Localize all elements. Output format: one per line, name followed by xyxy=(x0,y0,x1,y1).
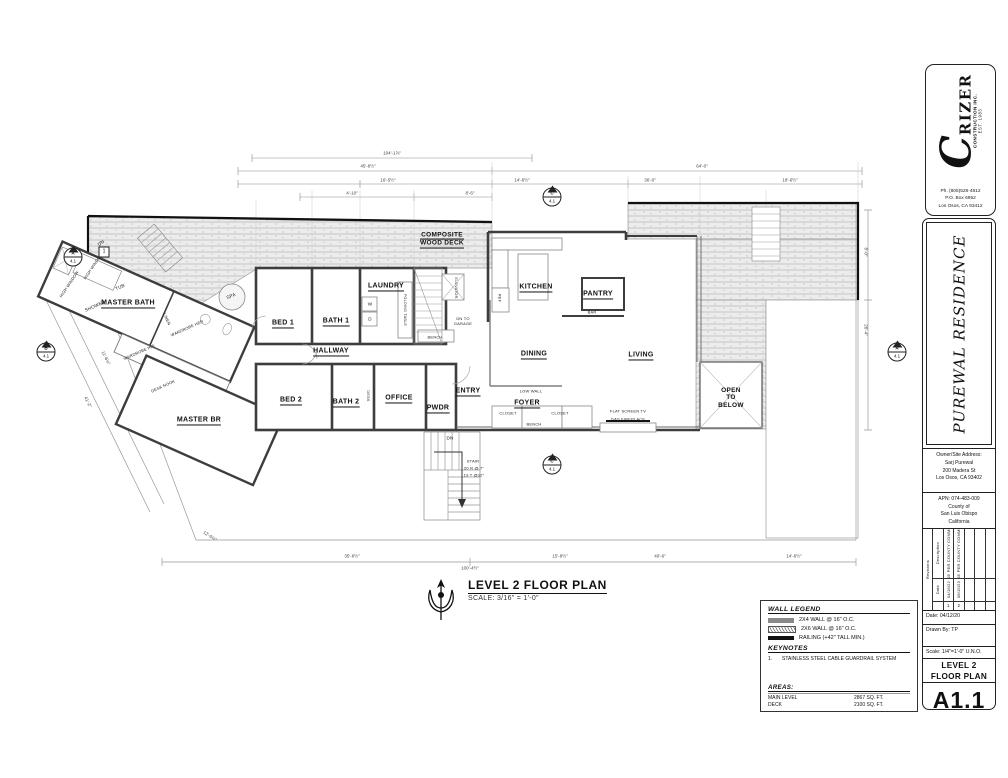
dimension-label: 45'-6½" xyxy=(360,164,375,169)
room-label: ENTRY xyxy=(456,387,481,396)
company-logo-box: CRIZER CONSTRUCTION INC. EST. 1983 Ph. (… xyxy=(925,64,996,216)
revisions-table: Revisions Description Date REVISE PER CO… xyxy=(923,529,995,611)
keynotes-title: KEYNOTES xyxy=(768,645,910,653)
sheet-title: LEVEL 2 FLOOR PLAN xyxy=(923,659,995,683)
room-label: HALLWAY xyxy=(313,347,349,356)
plan-annotation: GAS FIREPLACE xyxy=(611,417,645,422)
deck-stair-right xyxy=(752,207,780,261)
dimension-label: 8'-6" xyxy=(466,191,475,196)
dimension-label: 64'-0" xyxy=(696,164,707,169)
plan-annotation: BAR xyxy=(588,310,597,315)
plan-annotation: DN xyxy=(446,436,453,441)
plan-annotation: DN TO GARAGE xyxy=(449,317,477,327)
plan-annotation: STAIR xyxy=(467,459,479,464)
plan-title-block: LEVEL 2 FLOOR PLAN SCALE: 3/16" = 1'-0" xyxy=(424,578,607,622)
legend-item: RAILING (+42" TALL MIN.) xyxy=(768,635,910,641)
plan-title: LEVEL 2 FLOOR PLAN xyxy=(468,578,607,594)
keynote-item: 1. STAINLESS STEEL CABLE GUARDRAIL SYSTE… xyxy=(768,656,910,662)
date-field: Date: 04/12/20 xyxy=(923,611,995,625)
room-label: BATH 2 xyxy=(333,398,360,407)
room-label: LAUNDRY xyxy=(368,282,404,291)
company-contact: Ph. (805)528-4812 P.O. Box 6952 Los Osos… xyxy=(926,188,995,210)
dimension-label: 18'-6½" xyxy=(782,178,797,183)
dimension-label: 14'-6½" xyxy=(786,554,801,559)
room-label: OFFICE xyxy=(385,394,412,403)
plan-annotation: REF xyxy=(498,294,503,303)
plan-annotation: LOW WALL xyxy=(520,389,543,394)
dimension-label: 14'-6½" xyxy=(514,178,529,183)
dimension-label: 35'-6½" xyxy=(344,554,359,559)
room-label: MASTER BATH xyxy=(101,299,155,308)
owner-address-box: Owner/Site Address: Sarj Purewal 200 Mad… xyxy=(923,449,995,493)
plan-annotation: BENCH xyxy=(526,422,541,427)
dimension-label: 104'-1⅞" xyxy=(383,151,401,156)
plan-annotation: 19 T @12" xyxy=(464,473,485,478)
dimension-label: 100'-4½" xyxy=(461,566,479,571)
dimension-label: 15'-8½" xyxy=(552,554,567,559)
section-marker: A4.1 xyxy=(64,248,83,267)
room-label: PANTRY xyxy=(583,290,613,299)
plan-annotation: DESK xyxy=(366,390,370,401)
section-marker: B4.1 xyxy=(37,343,56,362)
plan-annotation: D xyxy=(368,317,372,322)
wall-swatch-gray xyxy=(768,618,794,623)
deck-label: COMPOSITE WOOD DECK xyxy=(420,232,464,249)
revision-entry: REVISE PER COUNTY COMMENTS 09/15/23 2 xyxy=(954,529,965,610)
room-label: BED 1 xyxy=(272,319,294,328)
revisions-header-col: Description Date xyxy=(933,529,944,610)
room-label: BED 2 xyxy=(280,396,302,405)
legend-item: 2X6 WALL @ 16" O.C. xyxy=(768,626,910,633)
room-label: DINING xyxy=(521,350,547,359)
wall-swatch-hatch xyxy=(768,626,796,633)
room-label: KITCHEN xyxy=(519,283,552,292)
title-block: PUREWAL RESIDENCE Owner/Site Address: Sa… xyxy=(922,218,996,710)
plan-annotation: ELEVATOR xyxy=(454,277,458,298)
room-label: PWDR xyxy=(427,404,450,413)
plan-annotation: BENCH xyxy=(427,335,442,340)
plan-annotation: 20 R @ 7" xyxy=(464,466,484,471)
dimension-label: 4'-10" xyxy=(346,191,357,196)
plan-annotation: W xyxy=(368,302,373,307)
area-row: MAIN LEVEL2867 SQ. FT. xyxy=(768,693,910,701)
plan-annotation: CLOSET xyxy=(499,411,516,416)
dimension-label: 26'-4" xyxy=(864,324,869,335)
section-marker: A4.1 xyxy=(888,343,907,362)
room-label: FOYER xyxy=(514,399,540,408)
plan-annotation: FLAT SCREEN TV xyxy=(610,409,646,414)
apn-box: APN: 074-483-009 County of San Luis Obis… xyxy=(923,493,995,529)
area-row: DECK2100 SQ. FT. xyxy=(768,701,910,708)
legend-box: WALL LEGEND 2X4 WALL @ 16" O.C. 2X6 WALL… xyxy=(760,600,918,712)
section-marker: C4.1 xyxy=(543,456,562,475)
company-logo: CRIZER CONSTRUCTION INC. EST. 1983 xyxy=(939,69,982,173)
keynote-flag: 1 xyxy=(99,247,110,258)
room-label: MASTER BR xyxy=(177,416,221,425)
areas-title: AREAS: xyxy=(768,684,910,692)
dimension-label: 16'-5½" xyxy=(380,178,395,183)
dimension-label: 36'-0" xyxy=(644,178,655,183)
plan-scale: SCALE: 3/16" = 1'-0" xyxy=(468,595,607,602)
north-arrow-icon xyxy=(424,578,458,622)
dimension-label: 40'-6" xyxy=(654,554,665,559)
section-marker: C4.1 xyxy=(543,188,562,207)
legend-item: 2X4 WALL @ 16" O.C. xyxy=(768,617,910,623)
sheet-number: A1.1 xyxy=(923,683,995,710)
room-label: LIVING xyxy=(628,351,653,360)
scale-field: Scale: 1/4"=1'-0" U.N.O. xyxy=(923,647,995,659)
project-name: PUREWAL RESIDENCE xyxy=(950,234,968,433)
railing-swatch xyxy=(768,636,794,640)
open-to-below-label: OPEN TO BELOW xyxy=(718,387,744,409)
revision-entry: REVISE PER COUNTY COMMENTS 04/16/22 1 xyxy=(944,529,955,610)
wall-legend-title: WALL LEGEND xyxy=(768,606,910,614)
project-name-box: PUREWAL RESIDENCE xyxy=(923,219,995,449)
dimension-label: 8'-0" xyxy=(864,248,869,257)
drawing-sheet: MASTER BATH MASTER BR BED 1 BATH 1 LAUND… xyxy=(0,0,1008,778)
plan-annotation: FOLDING TABLE xyxy=(403,294,407,326)
plan-annotation: CLOSET xyxy=(551,411,568,416)
room-label: BATH 1 xyxy=(323,317,350,326)
drawn-by-field: Drawn By: TP xyxy=(923,625,995,647)
